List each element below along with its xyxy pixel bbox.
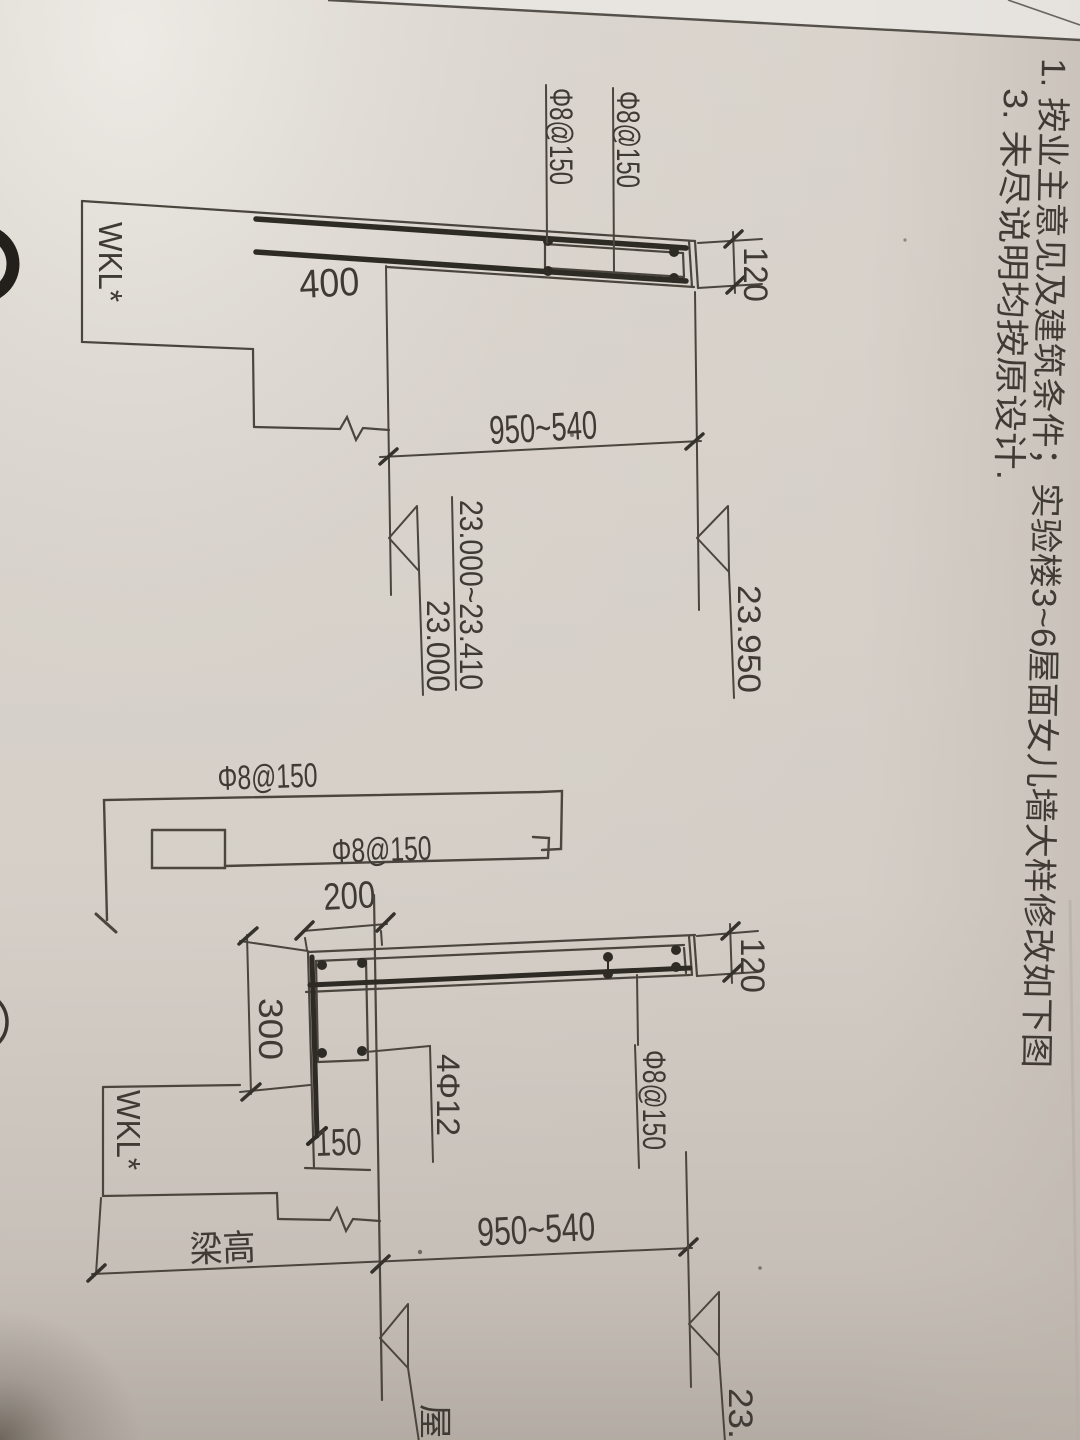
photo-of-structural-drawing: 1. 按业主意见及建筑条件；实验楼3~6屋面女儿墙大样修改如下图 3. 未尽说明… (0, 0, 1080, 1440)
note-line-3: 3. 未尽说明均按原设计. (989, 88, 1034, 481)
lower-dim-150: 150 (315, 1121, 362, 1165)
corner-shadow (0, 1310, 140, 1440)
dust-speck (903, 238, 906, 241)
lower-elevation-right-value: 23.95 (721, 1388, 759, 1440)
rebar-dot (317, 960, 327, 970)
upper-dim-span: 950~540 (488, 403, 598, 453)
upper-bar-label-1: Φ8@150 (543, 88, 579, 185)
lower-dim-300: 300 (251, 998, 289, 1060)
upper-beam-label: WKL* (92, 222, 129, 302)
drawing-sheet-photo: 1. 按业主意见及建筑条件；实验楼3~6屋面女儿墙大样修改如下图 3. 未尽说明… (0, 0, 1080, 1440)
upper-dim-400: 400 (298, 260, 360, 307)
lower-wall-bar-label: Φ8@150 (636, 1050, 672, 1150)
bar-shape-1-label: Φ8@150 (217, 757, 318, 798)
rebar-dot (671, 945, 681, 955)
rebar-dot (543, 266, 553, 276)
rebar-dot (357, 1046, 367, 1056)
roof-elevation-label: 屋面 (415, 1404, 453, 1440)
beam-height-label: 梁高 (189, 1227, 256, 1270)
dust-speck (758, 1266, 762, 1270)
upper-elevation-left-value2: 23.000 (420, 600, 456, 692)
lower-dim-200: 200 (322, 874, 376, 919)
rebar-dot (543, 236, 553, 246)
lower-dim-span: 950~540 (476, 1205, 596, 1255)
lower-corner-bars-label: 4Φ12 (430, 1054, 466, 1136)
rebar-dot (669, 247, 679, 257)
dust-speck (418, 1250, 422, 1254)
upper-bar-label-2: Φ8@150 (610, 91, 646, 188)
bar-shape-2-label: Φ8@150 (331, 830, 432, 871)
upper-dim-120: 120 (736, 247, 774, 302)
rebar-dot (671, 962, 681, 972)
rebar-dot (669, 273, 679, 283)
lower-dim-120: 120 (733, 938, 771, 993)
upper-elevation-right-value: 23.950 (731, 585, 767, 693)
lower-beam-label: WKL* (110, 1090, 147, 1170)
upper-elevation-left-value1: 23.000~23.410 (453, 500, 489, 690)
rebar-dot (357, 958, 367, 968)
rebar-dot (317, 1048, 327, 1058)
